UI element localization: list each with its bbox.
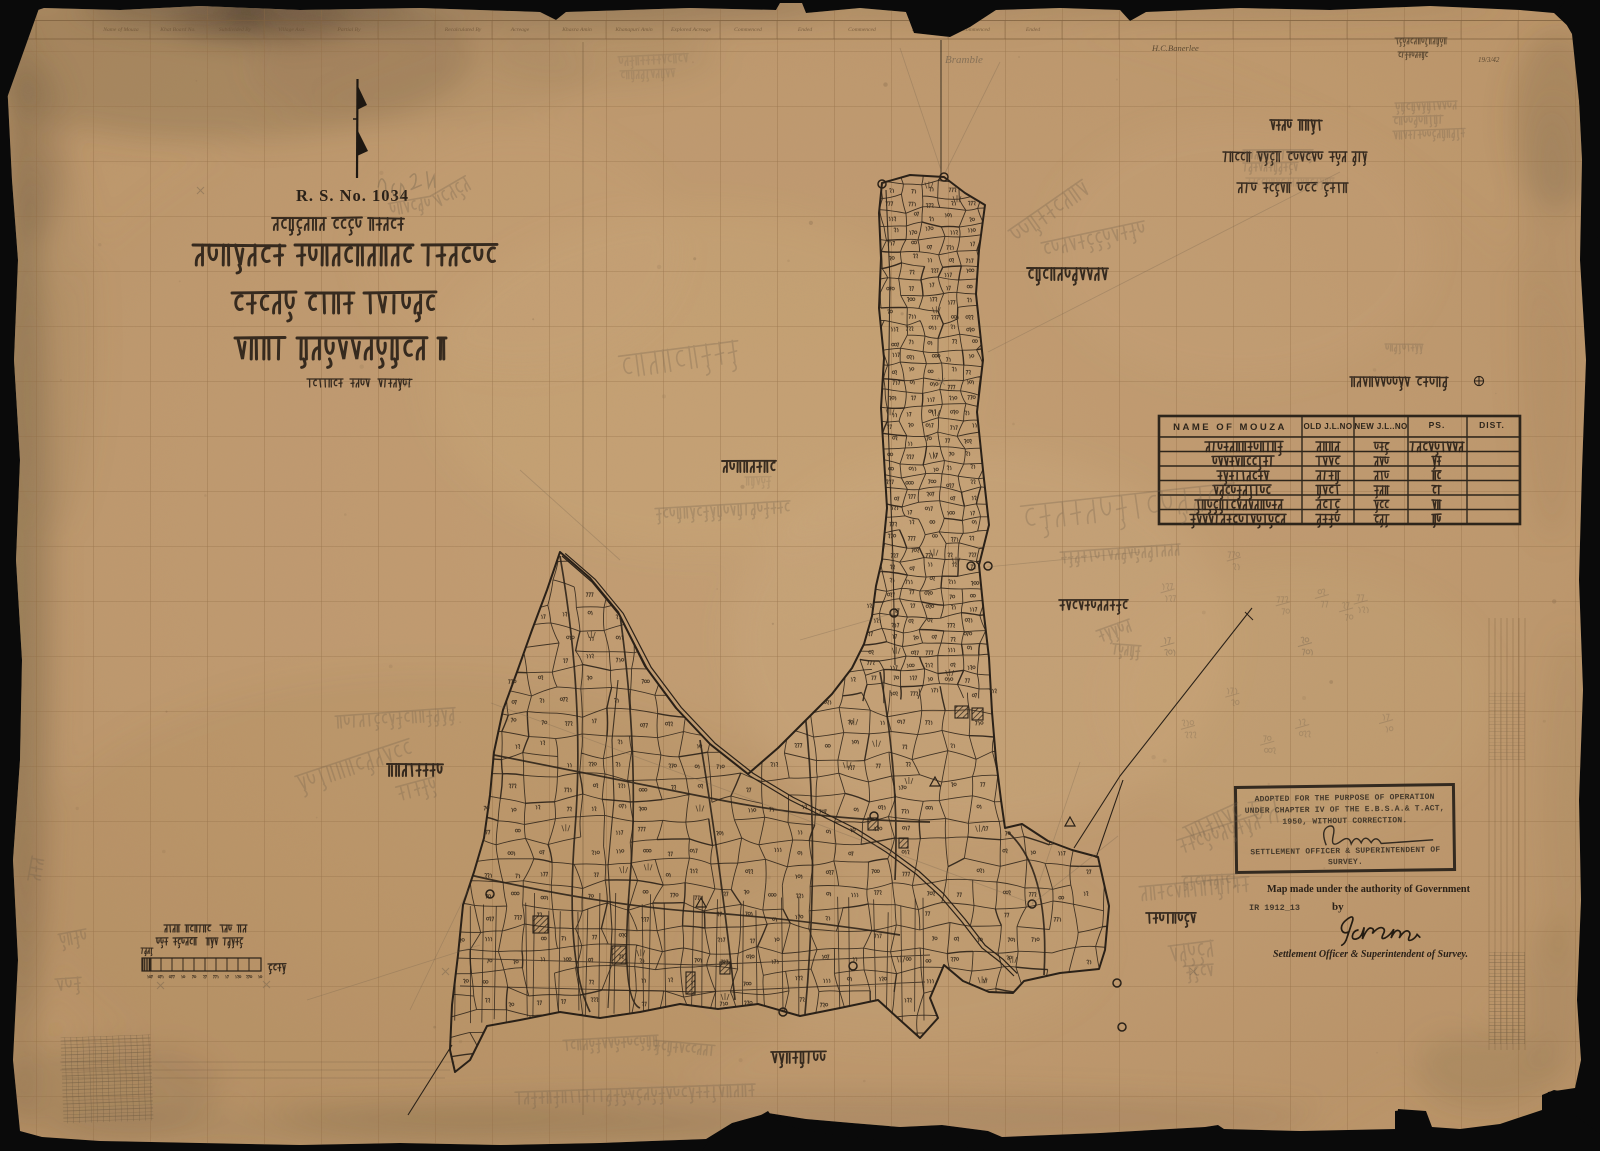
svg-text:H.C.Banerlee: H.C.Banerlee [1151,43,1199,53]
svg-text:Explored Acreage: Explored Acreage [670,27,712,33]
svg-text:Ended: Ended [1025,27,1040,33]
svg-text:Ended: Ended [797,27,812,33]
svg-text:Bramble: Bramble [945,54,983,66]
svg-text:OLD J.L.NO: OLD J.L.NO [1304,422,1353,431]
svg-text:19/3/42: 19/3/42 [1478,56,1500,64]
svg-text:Commenced: Commenced [734,27,762,33]
svg-text:Khat Board No.: Khat Board No. [159,27,195,33]
svg-text:SURVEY.: SURVEY. [1328,858,1363,867]
svg-text:Khasra Amin: Khasra Amin [561,27,592,33]
svg-text:Settlement Officer & Superinte: Settlement Officer & Superintendent of S… [1273,949,1468,960]
svg-text:PS.: PS. [1429,420,1446,430]
svg-text:Partial By: Partial By [336,27,361,33]
svg-text:Subdivided By: Subdivided By [219,27,252,33]
svg-text:NEW J.L..NO: NEW J.L..NO [1354,422,1407,431]
svg-text:NAME OF MOUZA: NAME OF MOUZA [1173,422,1287,433]
svg-text:Khanapuri Amin: Khanapuri Amin [614,27,653,33]
svg-text:Village Asst.: Village Asst. [278,27,306,33]
svg-text:by: by [1332,901,1344,913]
svg-text:Name of Mouza: Name of Mouza [102,26,139,33]
svg-text:Acreage: Acreage [510,27,530,33]
svg-text:Recalculated By: Recalculated By [444,27,482,33]
svg-text:IR 1912_13: IR 1912_13 [1249,903,1300,913]
svg-text:Commenced: Commenced [848,27,876,33]
svg-text:1950, WITHOUT CORRECTION.: 1950, WITHOUT CORRECTION. [1282,816,1407,827]
svg-text:DIST.: DIST. [1479,420,1505,430]
svg-text:Map made under the authority o: Map made under the authority of Governme… [1267,884,1471,895]
